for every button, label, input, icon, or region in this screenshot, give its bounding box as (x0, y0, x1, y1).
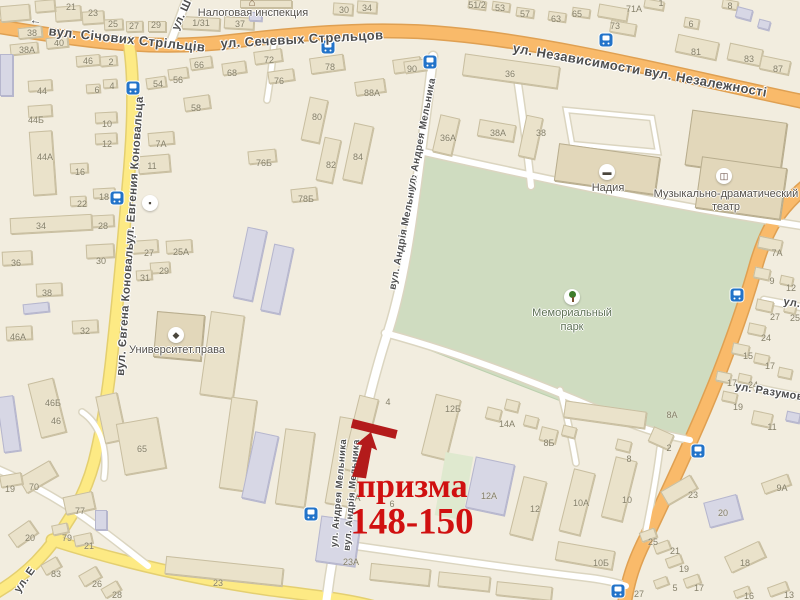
annotation-text-line2: 148-150 (350, 501, 473, 544)
map-canvas[interactable]: ⌂▪◆▬◫ 21232527291/31373034384038А4624464… (0, 0, 800, 600)
annotation-highlight-bar (351, 419, 398, 439)
